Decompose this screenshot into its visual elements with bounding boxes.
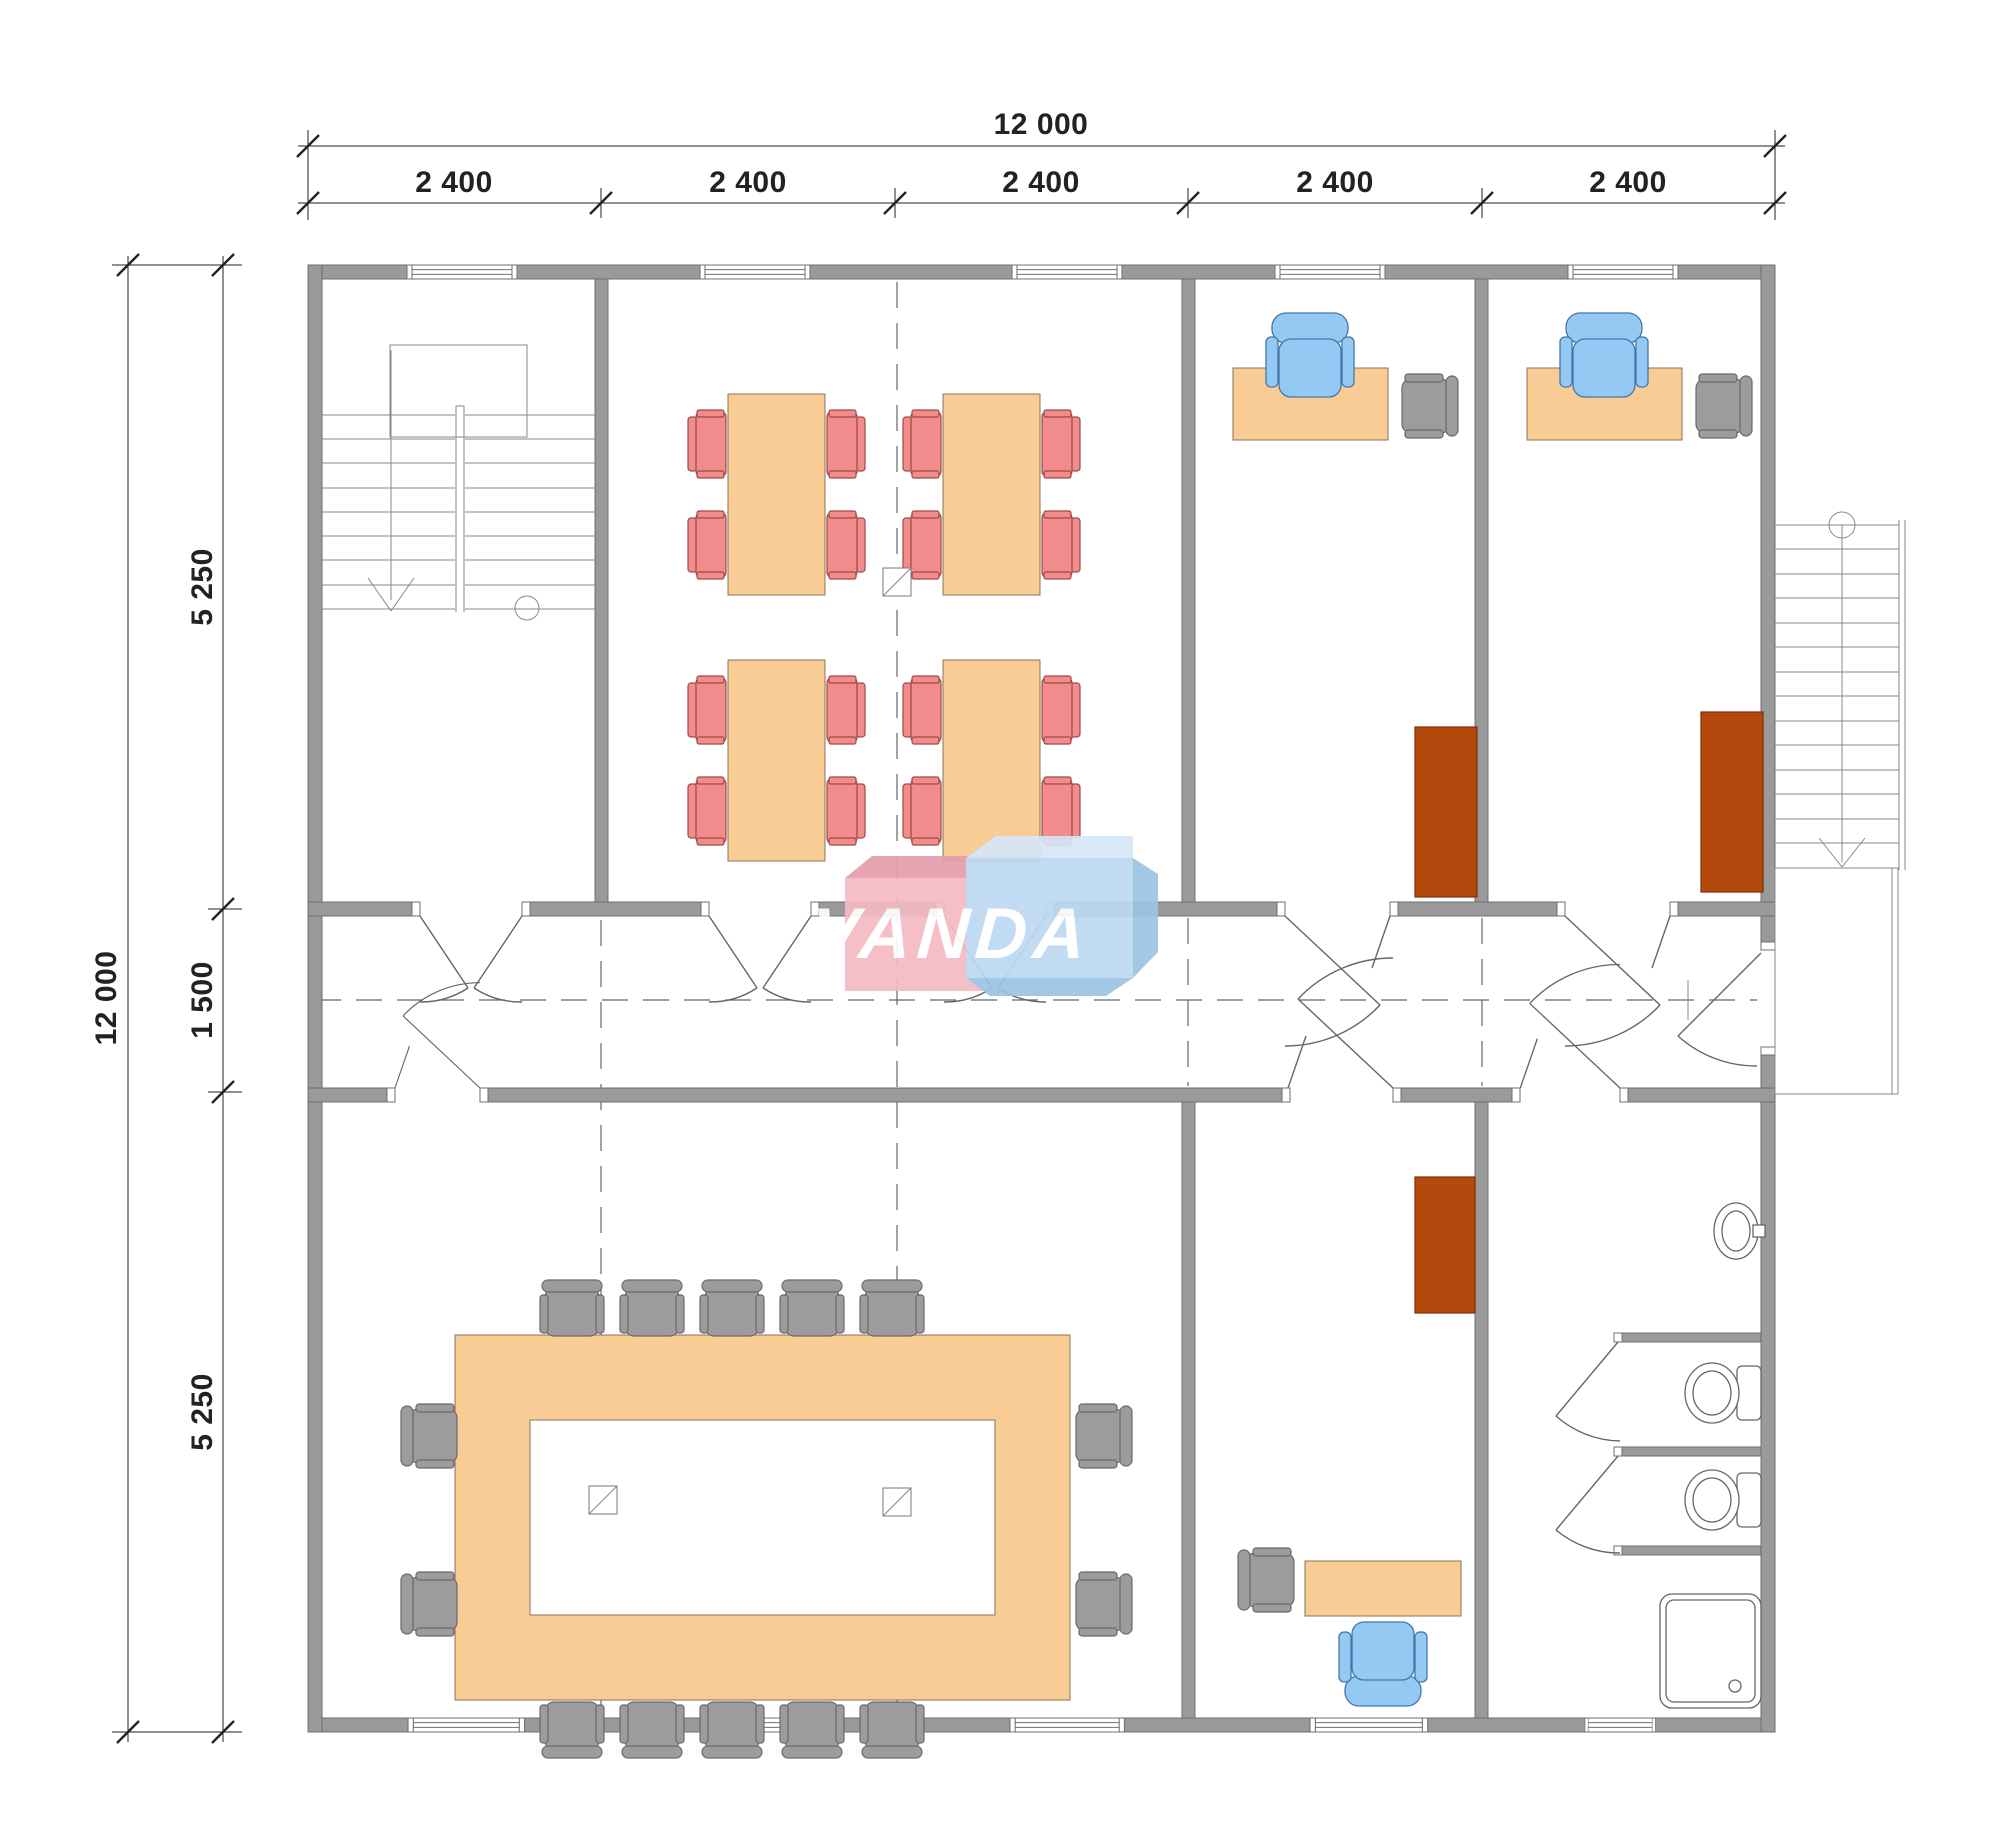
dim-left-total: 12 000: [90, 951, 123, 1046]
toilet: [1685, 1363, 1761, 1423]
window: [1275, 265, 1385, 279]
toilet: [1685, 1470, 1761, 1530]
door-stair-hall: [420, 916, 522, 1002]
window: [408, 1718, 525, 1732]
office-chair: [1339, 1622, 1427, 1706]
window: [1310, 1718, 1428, 1732]
dim-bay-3: 2 400: [1002, 166, 1080, 199]
exterior-staircase: [1775, 512, 1905, 1094]
office-chair: [1560, 313, 1648, 397]
bathroom: [1556, 1203, 1765, 1708]
dim-bay-2: 2 400: [709, 166, 787, 199]
stall-door: [1556, 1342, 1620, 1441]
vanda-logo: VANDA: [808, 836, 1158, 996]
dim-top-total: 12 000: [994, 108, 1089, 141]
wall-stair-classroom: [595, 279, 608, 902]
stair-direction-arrow: [368, 350, 414, 611]
stall-door: [1556, 1456, 1620, 1553]
column: [883, 568, 911, 596]
cabinet: [1415, 1177, 1475, 1313]
guest-chair: [1402, 374, 1458, 438]
office-2: [1527, 313, 1763, 892]
wall-classroom-office1: [1182, 279, 1195, 902]
office-3: [1238, 1177, 1475, 1706]
window: [700, 265, 810, 279]
logo-text: VANDA: [808, 894, 1094, 974]
floor-plan-canvas: 12 000 2 400 2 400 2 400 2 400 2 400 12 …: [0, 0, 2000, 1848]
shower: [1660, 1594, 1761, 1708]
office-chair: [1266, 313, 1354, 397]
dim-left-seg-3: 5 250: [186, 1373, 219, 1451]
sink: [1714, 1203, 1765, 1259]
conference-room: [401, 1280, 1132, 1758]
dim-bay-5: 2 400: [1589, 166, 1667, 199]
cabinet: [1701, 712, 1763, 892]
office-1: [1233, 313, 1477, 897]
entrance-landing: [1775, 868, 1898, 1094]
guest-chair: [1696, 374, 1752, 438]
window: [407, 265, 517, 279]
column: [883, 1488, 911, 1516]
window: [1568, 265, 1678, 279]
column: [589, 1486, 617, 1514]
dim-left-seg-2: 1 500: [186, 961, 219, 1039]
door-entrance: [1678, 953, 1761, 1066]
door-office-3: [1288, 958, 1393, 1088]
stall-partition: [1622, 1546, 1761, 1555]
dim-left-seg-1: 5 250: [186, 548, 219, 626]
wall-conference-office3: [1182, 1102, 1195, 1718]
stall-partition: [1622, 1333, 1761, 1342]
door-classroom-west: [709, 916, 811, 1002]
classroom-table: [728, 660, 825, 861]
stair-hall: [322, 345, 595, 620]
dim-bay-4: 2 400: [1296, 166, 1374, 199]
dim-bay-1: 2 400: [415, 166, 493, 199]
wall-office3-bathroom: [1475, 1102, 1488, 1718]
classroom-table: [943, 660, 1040, 861]
guest-chair: [1238, 1548, 1294, 1612]
stall-partition: [1622, 1447, 1761, 1456]
door-office-1: [1285, 916, 1390, 1046]
door-office-2: [1565, 916, 1670, 1046]
cabinet: [1415, 727, 1477, 897]
desk: [1305, 1561, 1461, 1616]
door-bathroom: [1520, 964, 1620, 1088]
window: [1012, 265, 1122, 279]
door-conference: [395, 983, 480, 1088]
window: [1585, 1718, 1655, 1732]
classroom-table: [943, 394, 1040, 595]
classroom: [688, 394, 1080, 861]
stair-start-circle: [515, 596, 539, 620]
classroom-table: [728, 394, 825, 595]
window: [1010, 1718, 1124, 1732]
